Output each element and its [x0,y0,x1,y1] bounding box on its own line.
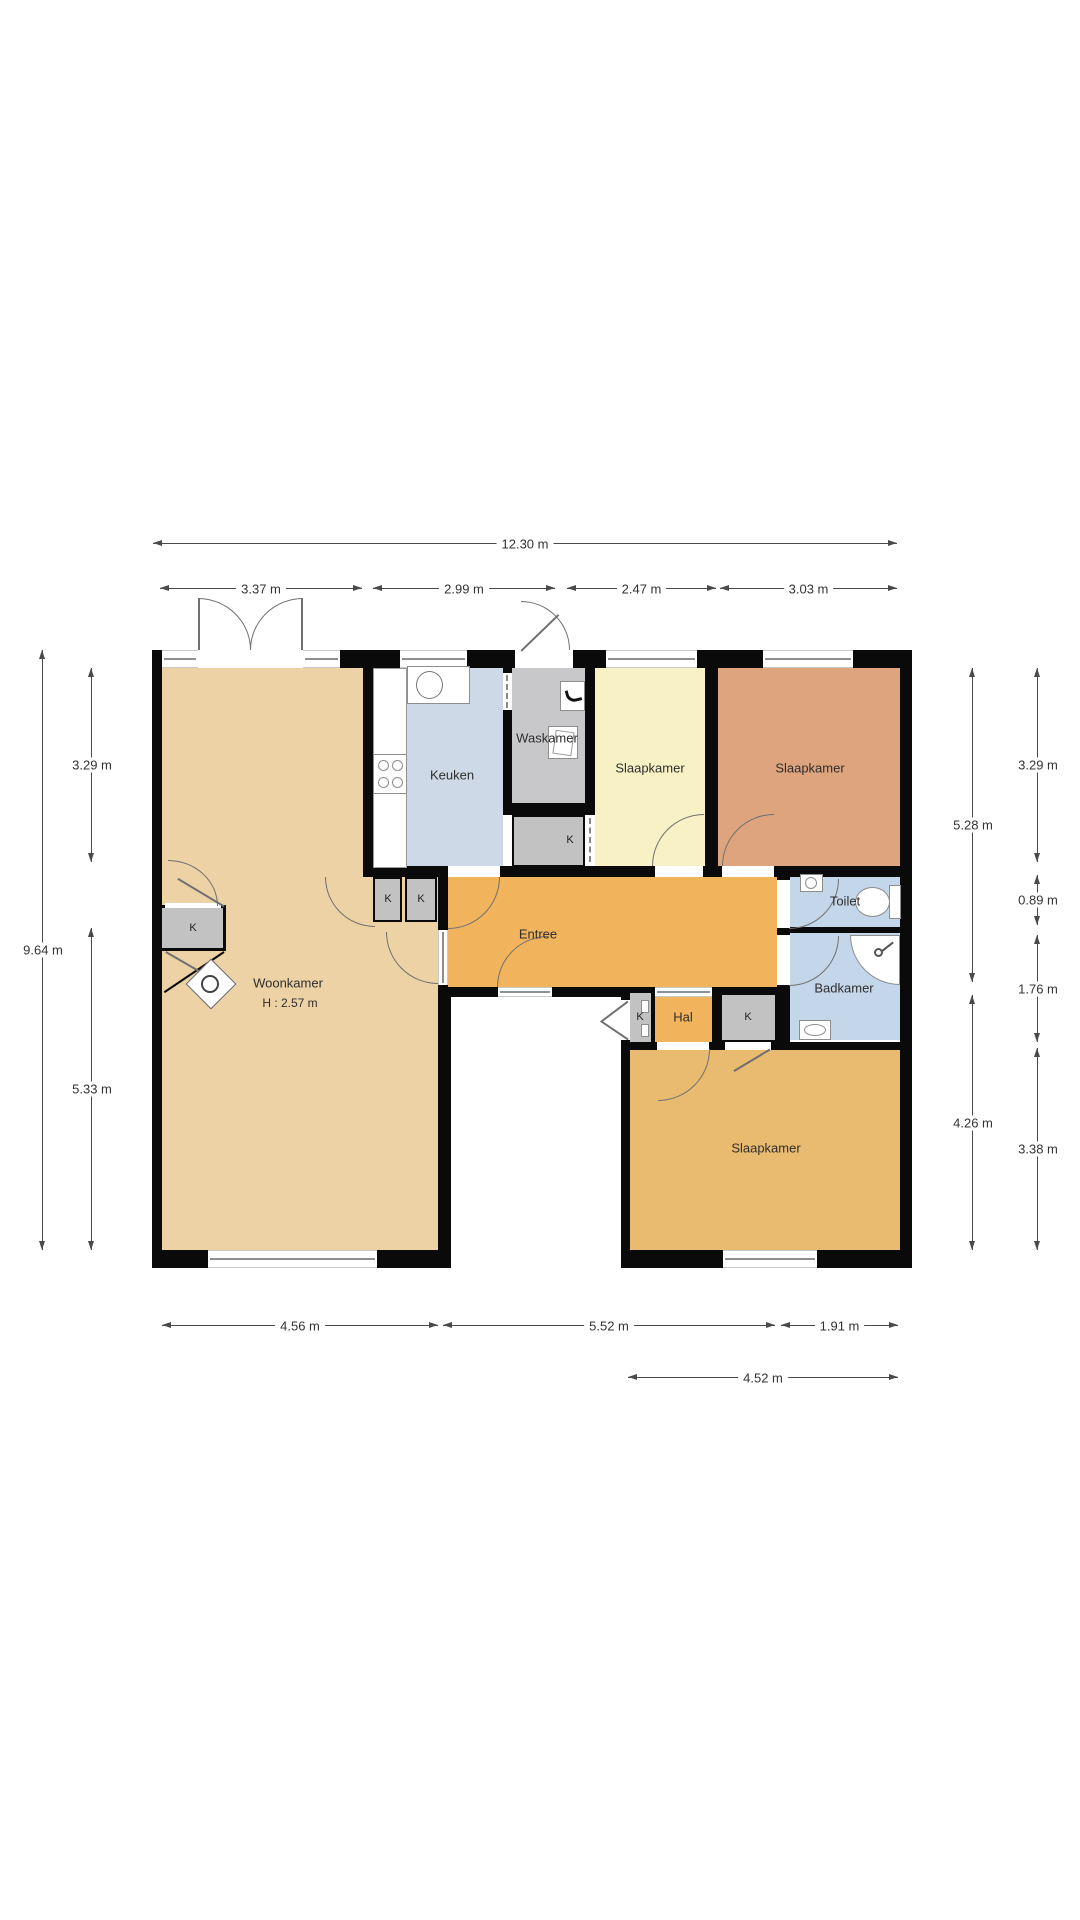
wall [363,668,373,877]
dim-label: 3.03 m [784,582,834,597]
door-opening [722,866,774,877]
window [208,1250,377,1268]
window [303,650,340,668]
sink-basin [416,671,443,699]
room-entree [448,877,777,987]
closet-label: K [566,834,573,846]
wall [790,927,900,933]
room-label-slaapkamer-mid: Slaapkamer [615,761,684,776]
wall [503,710,512,815]
dim-label: 1.76 m [1013,981,1063,996]
folding-door [506,675,508,708]
burner [378,760,389,771]
dim-label: 2.99 m [439,582,489,597]
wall [621,1042,657,1050]
burner [392,777,403,788]
wall [621,1250,723,1268]
wall [152,650,162,1268]
dim-overall-width: 12.30 m [153,543,897,544]
folding-door [589,818,591,862]
burner [392,760,403,771]
washbasin-bowl [804,1024,826,1036]
room-label-keuken: Keuken [430,768,474,783]
wall [438,866,448,930]
wall [438,997,451,1268]
wall [500,866,595,877]
room-label-slaapkamer-bottom: Slaapkamer [731,1141,800,1156]
dim-right-outer-1: 3.29 m [1037,668,1038,862]
door-opening-french [198,650,303,668]
dim-right-inner-top: 5.28 m [972,668,973,982]
dim-right-outer-3: 1.76 m [1037,935,1038,1042]
closet-label: K [384,893,391,905]
dim-left-overall: 9.64 m [42,650,43,1250]
room-label-waskamer: Waskamer [516,731,578,746]
closet-label: K [417,893,424,905]
closet-label: K [636,1011,643,1023]
room-label-badkamer: Badkamer [814,981,873,996]
stove-flue [201,975,219,993]
dim-top-3: 2.47 m [567,588,716,589]
dim-label: 5.28 m [948,818,998,833]
dim-label: 5.52 m [584,1319,634,1334]
dim-label: 2.47 m [617,582,667,597]
dim-top-2: 2.99 m [373,588,555,589]
door-swing [198,598,251,650]
room-label-slaapkamer-right: Slaapkamer [775,761,844,776]
door-swing [250,598,303,650]
dim-bottom-3: 1.91 m [781,1325,898,1326]
wall [771,1042,912,1050]
meter-box [641,1024,649,1037]
dim-top-1: 3.37 m [160,588,362,589]
wall [900,650,912,1268]
dim-bottom-2: 5.52 m [443,1325,775,1326]
wall [774,866,912,877]
dim-label: 9.64 m [18,943,68,958]
room-height-note: H : 2.57 m [262,996,317,1010]
dim-label: 4.52 m [738,1371,788,1386]
wall [503,803,595,815]
dim-label: 3.29 m [1013,758,1063,773]
dim-label: 3.29 m [67,758,117,773]
dim-label: 1.91 m [815,1319,865,1334]
wall [621,1040,630,1268]
closet-label: K [744,1011,751,1023]
door-opening [725,1042,771,1050]
dim-label: 0.89 m [1013,893,1063,908]
room-label-hal: Hal [673,1010,693,1025]
interior-window-hal [655,987,712,997]
dim-bottom-1: 4.56 m [162,1325,438,1326]
wall [705,650,718,866]
dim-left-top: 3.29 m [91,668,92,862]
wall [595,866,655,877]
arrow-icon [888,540,897,546]
wall [709,1042,725,1050]
wall [777,928,790,935]
window [162,650,198,668]
wall [817,1250,912,1268]
closet-label: K [189,922,196,934]
dim-left-bottom: 5.33 m [91,928,92,1250]
floorplan-canvas: Woonkamer H : 2.57 m Keuken Waskamer Sla… [0,0,1080,1920]
door-leaf [198,598,200,650]
stove [373,754,407,794]
wall [438,987,498,997]
dim-label: 3.37 m [236,582,286,597]
dim-top-4: 3.03 m [720,588,897,589]
closet-waskamer [512,815,585,867]
door-opening [448,866,500,877]
burner [378,777,389,788]
door-opening-glazed [498,987,552,997]
wall [585,650,595,815]
hand-basin-bowl [805,877,817,889]
door-opening-glazed [438,930,448,985]
wall [651,993,655,1042]
dim-right-outer-4: 3.38 m [1037,1048,1038,1250]
toilet-tank [889,885,901,919]
room-label-entree: Entree [519,927,557,942]
wall [777,866,790,880]
window [606,650,697,668]
wall [340,650,400,668]
wall [777,985,790,1048]
door-leaf [301,598,303,650]
wall [712,993,720,1042]
dim-label: 5.33 m [67,1082,117,1097]
door-opening [655,866,703,877]
room-label-toilet: Toilet [830,894,860,909]
dim-label: 4.56 m [275,1319,325,1334]
room-label-woonkamer: Woonkamer [253,976,323,991]
dim-right-inner-bottom: 4.26 m [972,995,973,1250]
dim-label: 4.26 m [948,1115,998,1130]
door-opening-front [515,650,573,668]
toilet-bowl [855,887,890,917]
arrow-icon [153,540,162,546]
wall [152,1250,208,1268]
dim-label: 12.30 m [497,537,554,552]
dim-label: 3.38 m [1013,1142,1063,1157]
dim-bottom-overall: 4.52 m [628,1377,898,1378]
wall [703,866,722,877]
window [723,1250,817,1268]
wall [467,650,515,668]
dim-right-outer-2: 0.89 m [1037,875,1038,925]
room-woonkamer [162,668,363,877]
window [763,650,853,668]
